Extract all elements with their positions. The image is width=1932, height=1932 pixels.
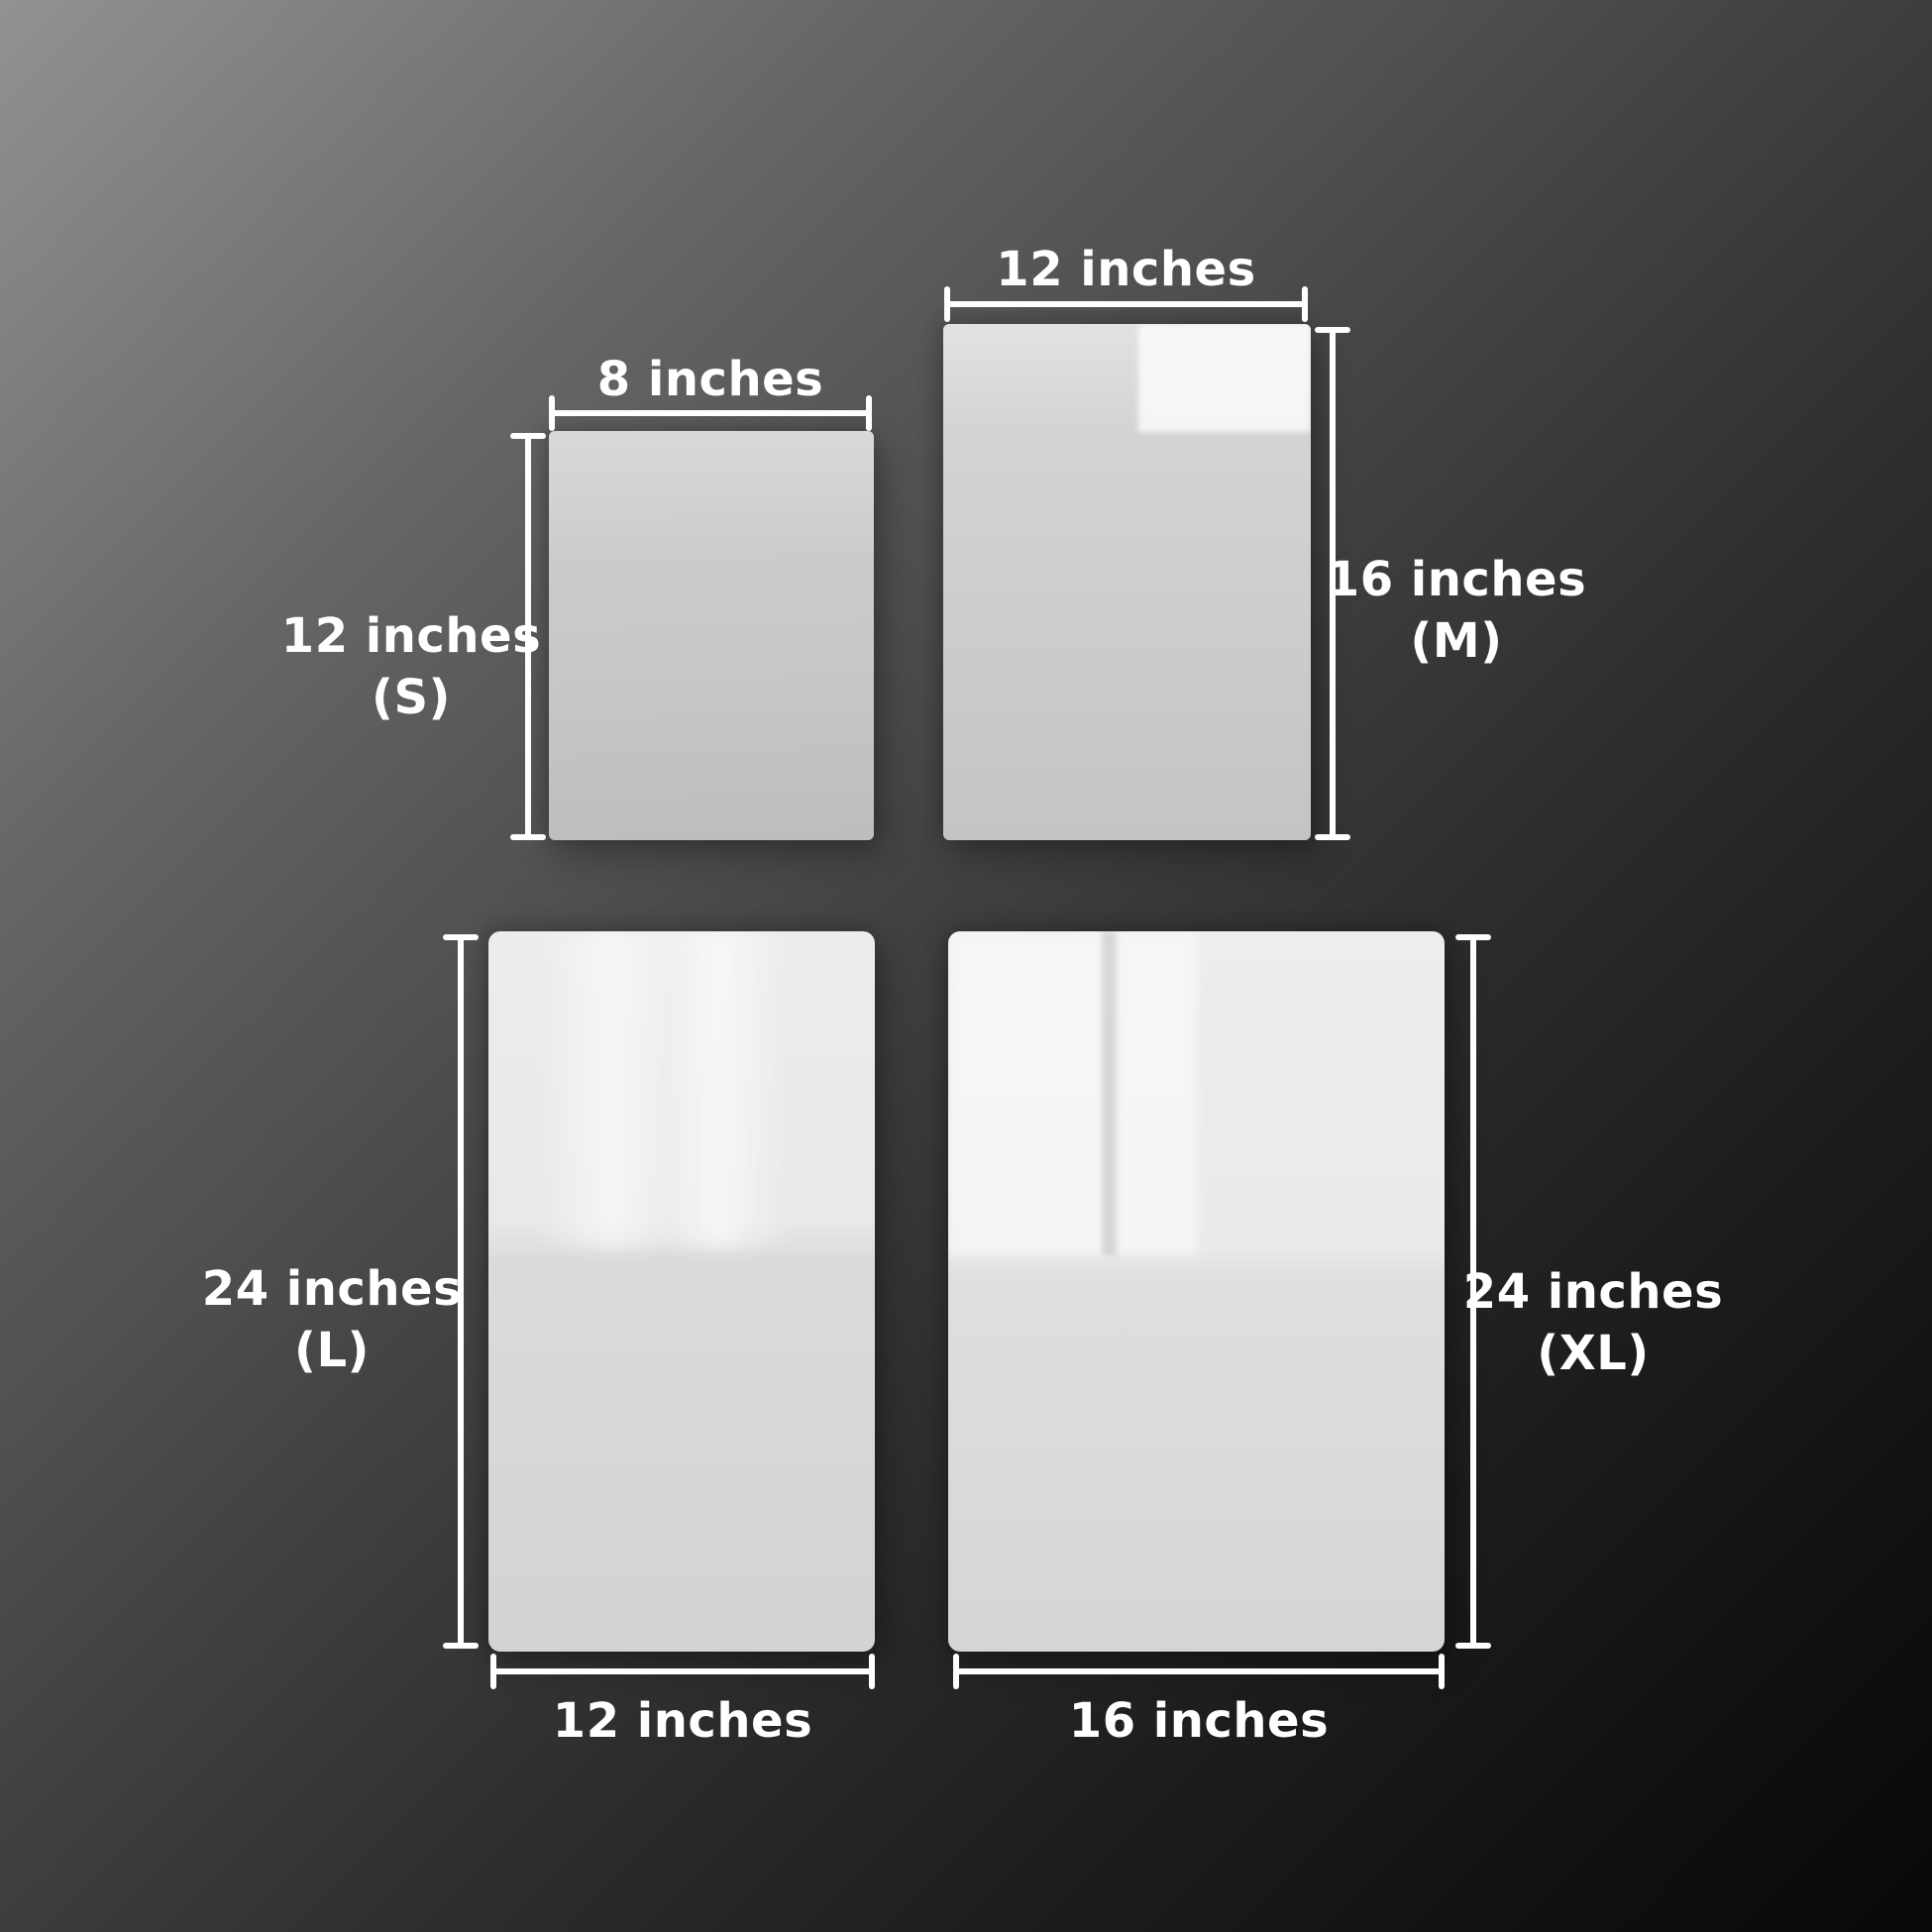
dimension-tick-start xyxy=(549,395,555,431)
width-dimension-line-xl xyxy=(953,1654,1445,1689)
dimension-tick-end xyxy=(1315,834,1350,840)
size-code-xl: (XL) xyxy=(1449,1323,1737,1384)
height-label-m-value: 16 inches xyxy=(1313,549,1600,610)
dimension-tick-end xyxy=(869,1654,875,1689)
dimension-tick-start xyxy=(490,1654,496,1689)
sheet-reflection xyxy=(948,931,1197,1255)
dimension-tick-end xyxy=(443,1643,479,1649)
dimension-bar xyxy=(944,301,1308,307)
acrylic-sheet-s xyxy=(549,431,874,840)
size-code-l: (L) xyxy=(188,1320,476,1381)
dimension-bar xyxy=(490,1668,875,1674)
dimension-tick-start xyxy=(1455,934,1491,940)
height-label-s: 12 inches (S) xyxy=(268,605,555,728)
sheet-reflection xyxy=(943,324,1311,438)
dimension-tick-end xyxy=(1439,1654,1445,1689)
dimension-tick-start xyxy=(510,433,546,439)
dimension-bar xyxy=(549,410,872,416)
acrylic-sheet-m xyxy=(943,324,1311,840)
dimension-tick-end xyxy=(866,395,872,431)
dimension-tick-end xyxy=(510,834,546,840)
size-comparison-diagram: 8 inches 12 inches (S) 12 inches 16 inch… xyxy=(0,0,1932,1932)
size-code-m: (M) xyxy=(1313,610,1600,672)
width-label-l: 12 inches xyxy=(490,1690,875,1752)
height-label-xl: 24 inches (XL) xyxy=(1449,1261,1737,1384)
sheet-reflection xyxy=(549,431,874,570)
acrylic-sheet-l xyxy=(488,931,875,1652)
width-label-xl: 16 inches xyxy=(953,1690,1445,1752)
width-dimension-line-l xyxy=(490,1654,875,1689)
width-dimension-line-m xyxy=(944,286,1308,322)
height-label-l-value: 24 inches xyxy=(188,1258,476,1320)
dimension-tick-start xyxy=(1315,327,1350,333)
dimension-tick-start xyxy=(944,286,950,322)
dimension-tick-end xyxy=(1455,1643,1491,1649)
dimension-tick-start xyxy=(443,934,479,940)
dimension-bar xyxy=(953,1668,1445,1674)
dimension-tick-end xyxy=(1302,286,1308,322)
height-label-l: 24 inches (L) xyxy=(188,1258,476,1381)
height-label-xl-value: 24 inches xyxy=(1449,1261,1737,1323)
sheet-reflection-seam xyxy=(1102,931,1117,1255)
acrylic-sheet-xl xyxy=(948,931,1445,1652)
size-code-s: (S) xyxy=(268,667,555,728)
dimension-tick-start xyxy=(953,1654,959,1689)
sheet-reflection xyxy=(535,931,790,1248)
width-dimension-line-s xyxy=(549,395,872,431)
height-label-m: 16 inches (M) xyxy=(1313,549,1600,672)
height-label-s-value: 12 inches xyxy=(268,605,555,667)
